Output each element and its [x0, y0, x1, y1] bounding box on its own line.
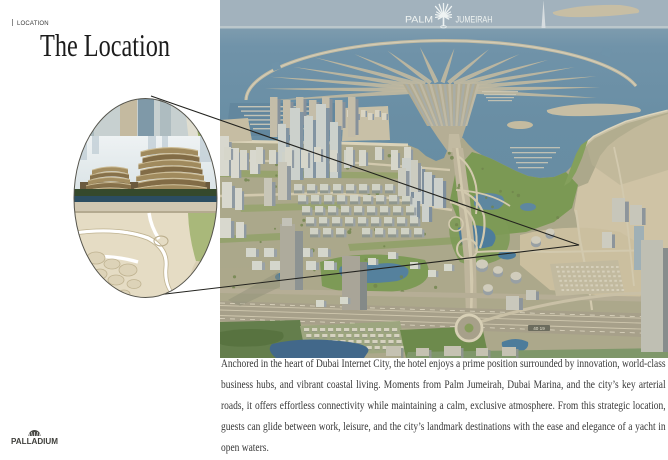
- svg-text:PALLADIUM: PALLADIUM: [11, 437, 58, 446]
